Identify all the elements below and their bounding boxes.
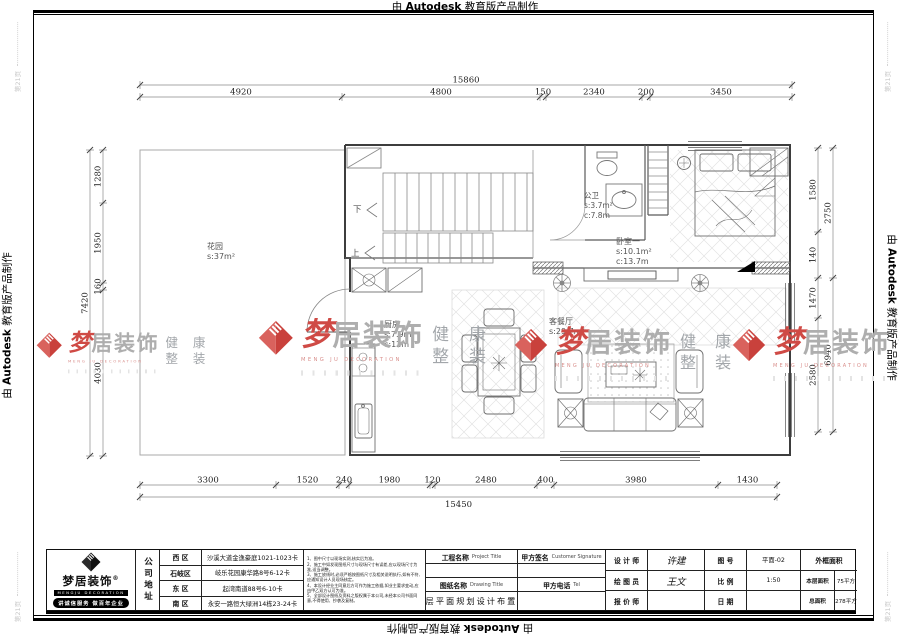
title-block: 梦居装饰® MENGJU DECORATION 讲诚信服务 做百年企业 公司地址… [46,549,856,611]
bedroom-label: 卧室一 [616,236,640,246]
drafter-name: 王文 [648,571,705,592]
dim-label: 3450 [710,88,732,98]
dim-label: 160 [94,278,104,294]
autodesk-banner-bottom: 由 Autodesk 教育版产品制作 [330,621,590,636]
mengju-logo-icon [81,552,101,572]
autodesk-banner-top: 由 Autodesk 教育版产品制作 [335,0,595,14]
svg-text:s:3.7m²: s:3.7m² [584,201,613,210]
dim-label: 2480 [475,476,497,486]
dim-label: 400 [537,476,553,486]
drawing-sheet: { "edge": {"prefix": "由", "brand": "Auto… [0,0,899,636]
drafter-label: 绘 图 员 [606,571,648,592]
dim-label: 1280 [94,166,104,188]
dim-label: 1520 [297,476,319,486]
dim-label: 240 [336,476,352,486]
floor-area-value: 75平方 [835,571,857,592]
dim-label: 15450 [445,500,472,510]
total-area-label: 总面积 [801,591,835,610]
address-south: 永安一路恒大绿洲14栋23-24卡 [202,597,304,611]
company-name: 梦居装饰® [63,573,120,589]
dim-label: 3300 [197,476,219,486]
garden-boundary [140,150,345,455]
dim-label: 15860 [452,76,479,86]
svg-text:s:10.1m²: s:10.1m² [616,247,652,256]
dim-label: 200 [638,88,654,98]
frame-area-label: 外框面积 [801,550,857,571]
watermark: 梦居装饰 MENG JU DECORATION 健 康整 装 [258,320,493,376]
fold-mark: 第21页 [12,22,22,92]
total-area-value: 278平方 [835,591,857,610]
stair-down-label: 下 [353,205,362,215]
designer-label: 设 计 师 [606,550,648,571]
scale-value: 1:50 [747,571,801,592]
dim-label: 1580 [809,179,819,201]
figure-no-label: 图 号 [705,550,747,571]
frame-bottom-thin [33,615,874,616]
wall-pier [752,262,790,274]
mengju-logo-icon [36,332,63,359]
dim-label: 1430 [737,476,759,486]
construction-notes: 1、图中尺寸以现场实测,核实后为准。 2、施工中如发现图纸尺寸与现场尺寸有误差,… [304,550,426,610]
floor-plan: 花园 s:37m² 厨房 s:7.9m² c:12m 公卫 s:3.7m² c:… [0,0,899,636]
dim-label: 7420 [81,292,91,314]
dim-label: 1950 [94,232,104,254]
dim-label: 2340 [583,88,605,98]
scale-label: 比 例 [705,571,747,592]
dim-label: 150 [535,88,551,98]
quoter-label: 报 价 师 [606,591,648,610]
date-value [747,591,801,610]
frame-left [33,10,34,621]
address-shiqi: 岐乐花园康华路8号6-12卡 [202,566,304,582]
autodesk-banner-left: 由 Autodesk 教育版产品制作 [0,196,15,456]
dim-label: 1980 [379,476,401,486]
mengju-logo-icon [732,328,766,362]
date-label: 日 期 [705,591,747,610]
svg-text:c:7.8m: c:7.8m [584,211,610,220]
autodesk-banner-right: 由 Autodesk 教育版产品制作 [885,178,899,438]
stair-up-label: 上 [351,249,360,259]
district-south: 南 区 [160,597,202,611]
bath-label: 公卫 [584,191,599,200]
mengju-logo-icon [258,320,294,356]
svg-text:c:13.7m: c:13.7m [616,257,649,266]
watermark: 梦居装饰 MENG JU DECORATION 健 康整 装 [36,332,211,373]
fold-mark: 第21页 [12,552,22,622]
designer-name: 许建 [648,550,705,571]
drawing-title-label: 图纸名称Drawing Title [426,578,518,592]
company-name-en: MENGJU DECORATION [54,590,127,596]
fold-mark: 第21页 [882,22,892,92]
drawing-title-value: 一层平面规划设计布置图 [426,592,518,610]
address-header: 公司地址 [136,550,160,610]
watermark: 梦居装饰 MENG JU DECORATION 健 康整 装 [514,328,738,381]
dim-label: 1470 [809,287,819,309]
wall-pier [533,262,563,274]
district-east: 东 区 [160,581,202,597]
customer-signature-label: 甲方签名Customer Signature [518,550,606,564]
figure-no-value: 平面-02 [747,550,801,571]
project-title-value [426,564,518,578]
frame-right [873,10,874,621]
dim-label: 2750 [824,202,834,224]
company-slogan: 讲诚信服务 做百年企业 [53,598,129,608]
dim-label: 4800 [430,88,452,98]
floor-area-label: 本层面积 [801,571,835,592]
dim-label: 4920 [230,88,252,98]
watermark: 梦居装饰 MENG JU DECORATION 健 康整 装 [732,328,899,381]
svg-text:s:37m²: s:37m² [207,252,235,261]
mengju-logo-icon [514,328,548,362]
project-title-label: 工程名称Project Title [426,550,518,564]
address-east: 起湾南道88号6-10卡 [202,581,304,597]
customer-signature-value [518,564,606,578]
address-west: 沙溪大道金逸豪庭1021-1023卡 [202,550,304,566]
dim-label: 120 [424,476,440,486]
garden-label: 花园 [207,241,223,251]
quoter-name [648,591,705,610]
title-block-heavy-rule [46,611,856,614]
district-shiqi: 石岐区 [160,566,202,582]
customer-tel-value [518,592,606,610]
dim-label: 140 [809,247,819,263]
dim-label: 3980 [625,476,647,486]
customer-tel-label: 甲方电话Tel [518,578,606,592]
frame-top-thin [33,14,874,15]
district-west: 西 区 [160,550,202,566]
company-logo: 梦居装饰® MENGJU DECORATION 讲诚信服务 做百年企业 [47,550,136,610]
fold-mark: 第21页 [882,552,892,622]
